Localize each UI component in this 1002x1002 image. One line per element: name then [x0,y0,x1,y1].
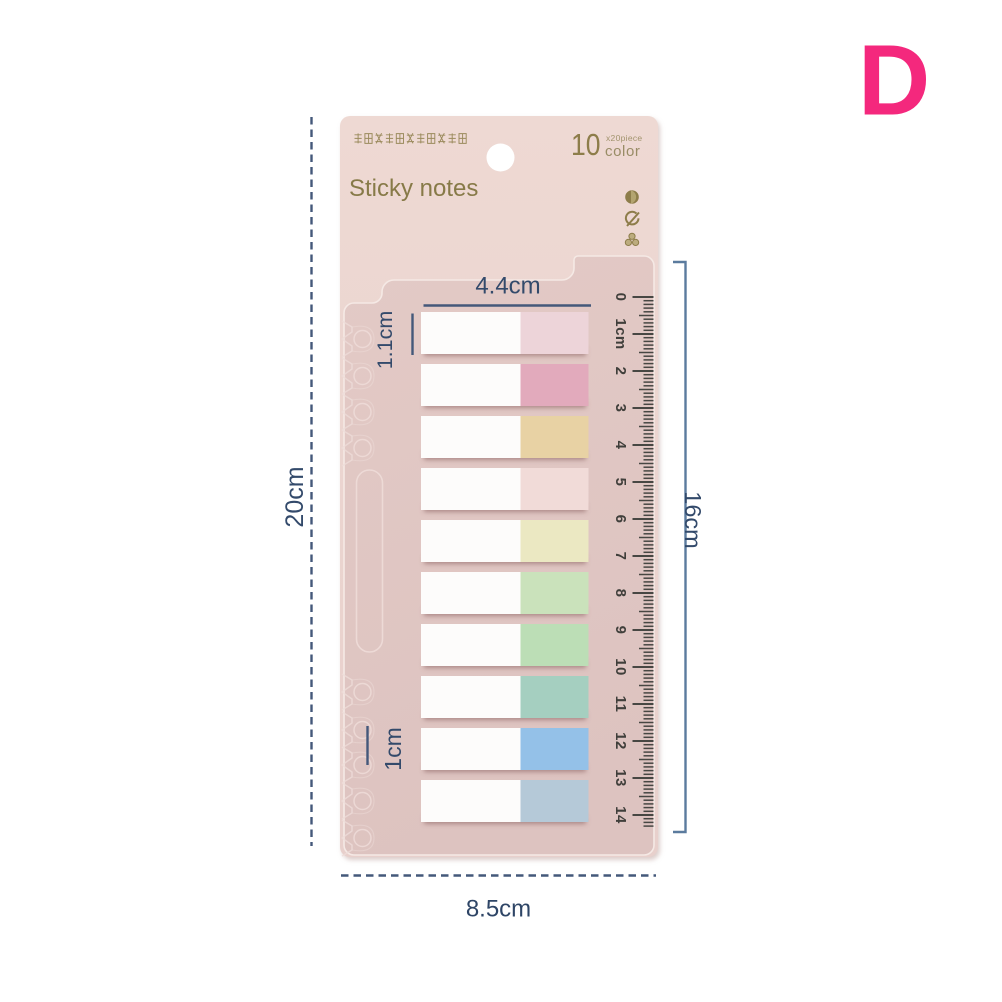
svg-text:13: 13 [612,769,629,787]
svg-text:4.4cm: 4.4cm [475,273,540,300]
svg-text:4: 4 [612,441,629,450]
svg-text:0: 0 [612,293,629,302]
svg-text:1cm: 1cm [612,318,629,350]
svg-text:Sticky notes: Sticky notes [349,175,478,202]
svg-text:10: 10 [612,658,629,676]
svg-text:color: color [605,143,641,160]
svg-text:7: 7 [612,552,629,561]
svg-text:12: 12 [612,732,629,750]
svg-text:8.5cm: 8.5cm [466,896,531,923]
svg-text:1cm: 1cm [380,727,406,770]
svg-text:14: 14 [612,806,629,824]
svg-text:8: 8 [612,589,629,598]
svg-text:10: 10 [571,127,601,162]
svg-text:2: 2 [612,367,629,376]
svg-text:16cm: 16cm [680,491,706,548]
svg-text:20cm: 20cm [281,466,309,527]
svg-text:6: 6 [612,515,629,524]
svg-text:3: 3 [612,404,629,413]
svg-text:11: 11 [612,696,629,713]
svg-text:9: 9 [612,626,629,635]
svg-text:D: D [858,25,930,137]
svg-text:5: 5 [612,478,629,487]
svg-text:1.1cm: 1.1cm [373,311,397,370]
svg-text:x20piece: x20piece [606,133,642,143]
